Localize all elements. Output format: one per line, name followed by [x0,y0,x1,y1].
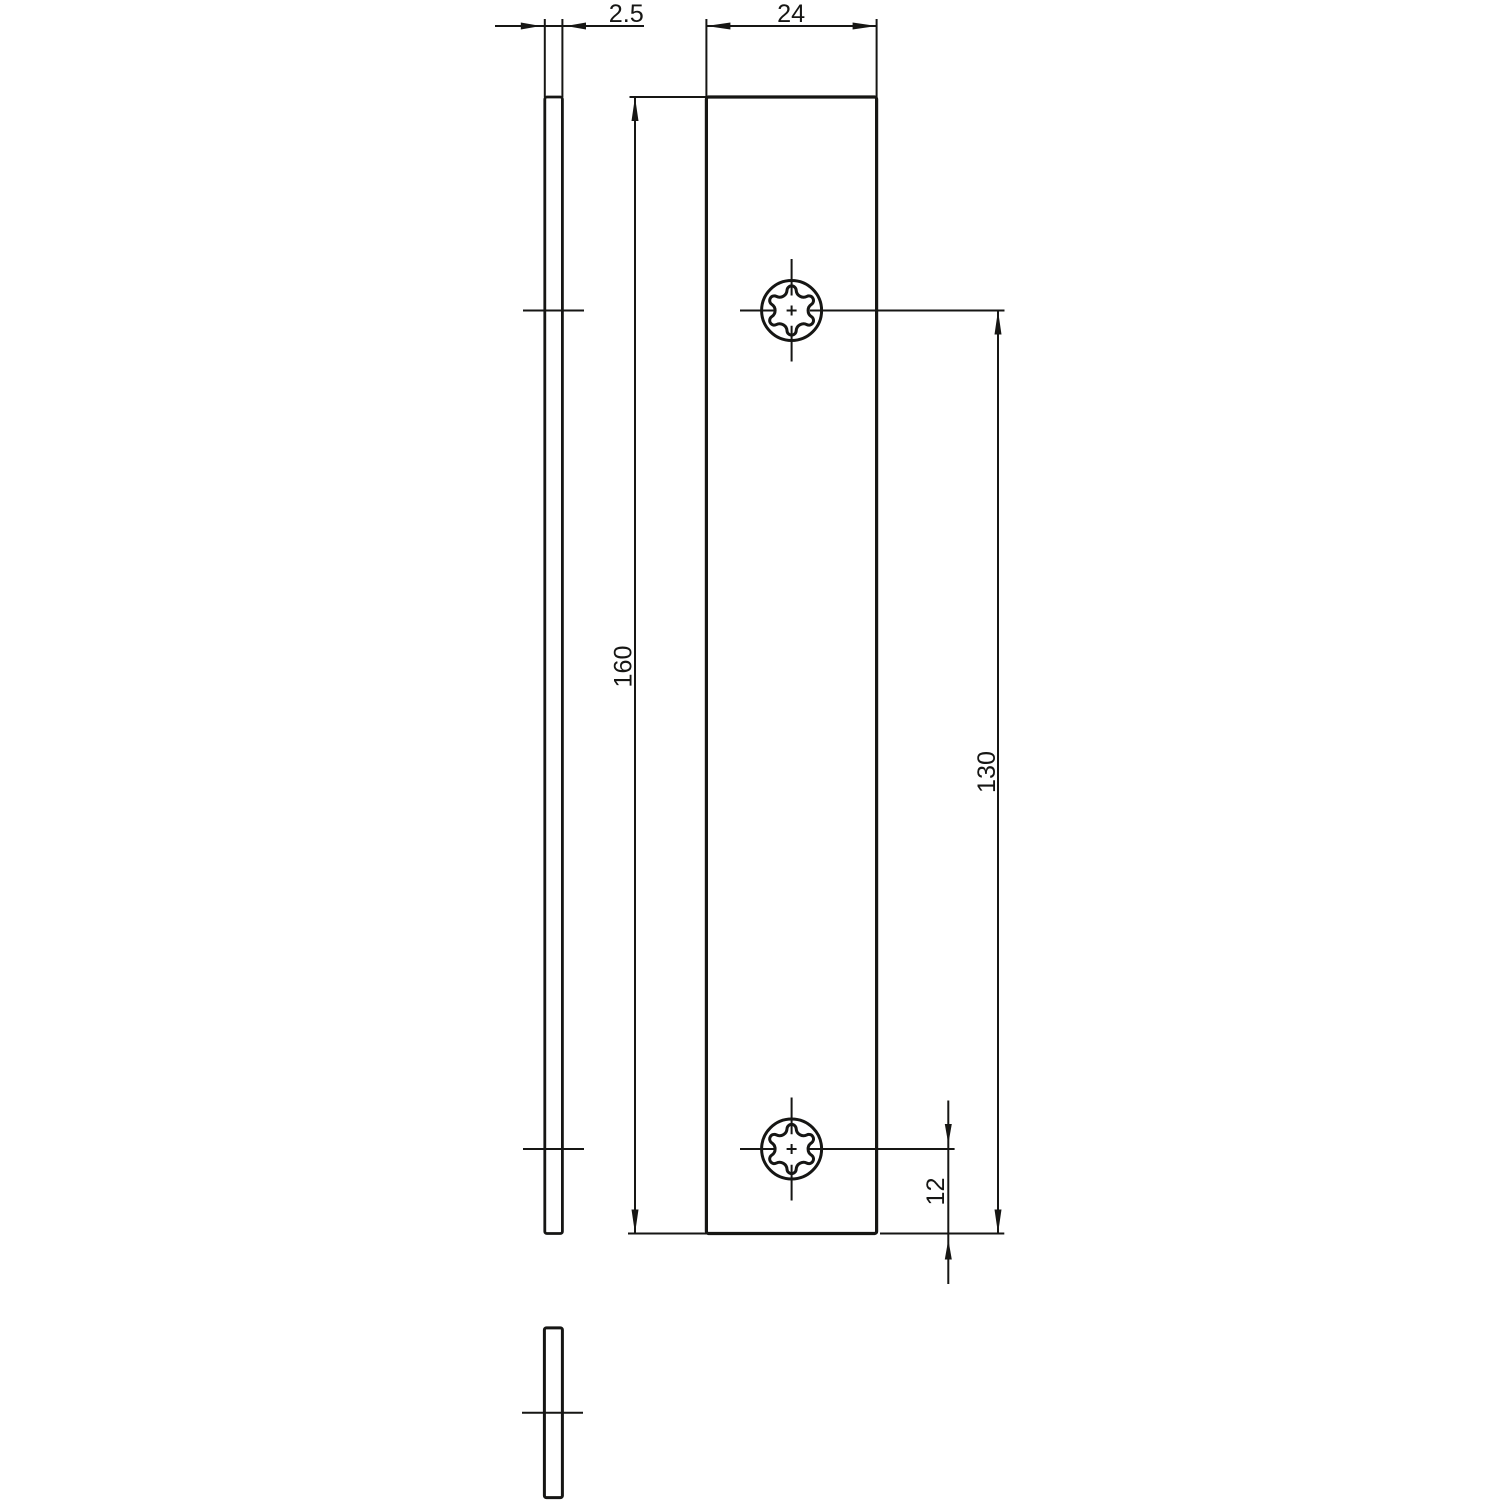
svg-text:160: 160 [609,645,637,687]
svg-text:2.5: 2.5 [609,0,644,28]
svg-text:12: 12 [922,1177,950,1205]
svg-text:130: 130 [973,751,1001,793]
svg-text:24: 24 [777,0,805,28]
